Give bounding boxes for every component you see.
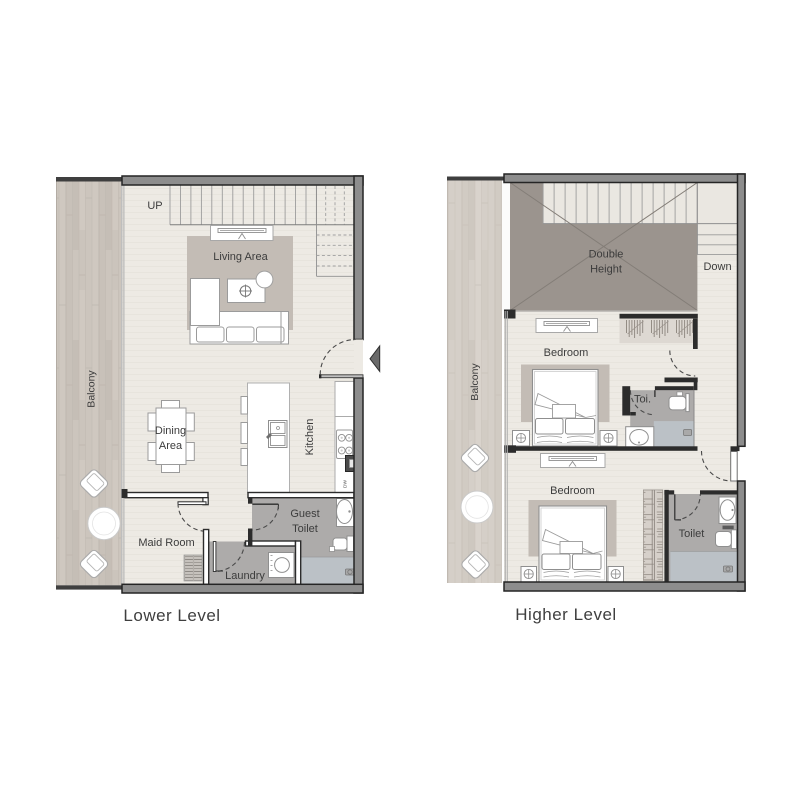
svg-text:Balcony: Balcony xyxy=(469,363,481,401)
svg-text:Lower Level: Lower Level xyxy=(123,606,220,625)
svg-text:Dining: Dining xyxy=(155,425,186,437)
svg-text:Maid Room: Maid Room xyxy=(138,537,194,549)
svg-text:Down: Down xyxy=(703,261,731,273)
svg-text:Toilet: Toilet xyxy=(679,528,705,540)
svg-text:Balcony: Balcony xyxy=(86,370,98,408)
svg-text:Laundry: Laundry xyxy=(225,570,265,582)
svg-text:UP: UP xyxy=(147,200,162,212)
svg-text:Double: Double xyxy=(589,249,624,261)
svg-text:Height: Height xyxy=(590,264,622,276)
svg-text:Area: Area xyxy=(159,440,183,452)
svg-text:Kitchen: Kitchen xyxy=(304,419,316,456)
svg-text:DW: DW xyxy=(343,480,349,488)
svg-text:Toi.: Toi. xyxy=(634,394,651,406)
svg-text:Guest: Guest xyxy=(290,508,319,520)
svg-text:Toilet: Toilet xyxy=(292,523,318,535)
svg-text:Bedroom: Bedroom xyxy=(544,347,589,359)
svg-text:Higher Level: Higher Level xyxy=(515,605,616,624)
svg-text:Living Area: Living Area xyxy=(213,251,268,263)
svg-text:Bedroom: Bedroom xyxy=(550,485,595,497)
